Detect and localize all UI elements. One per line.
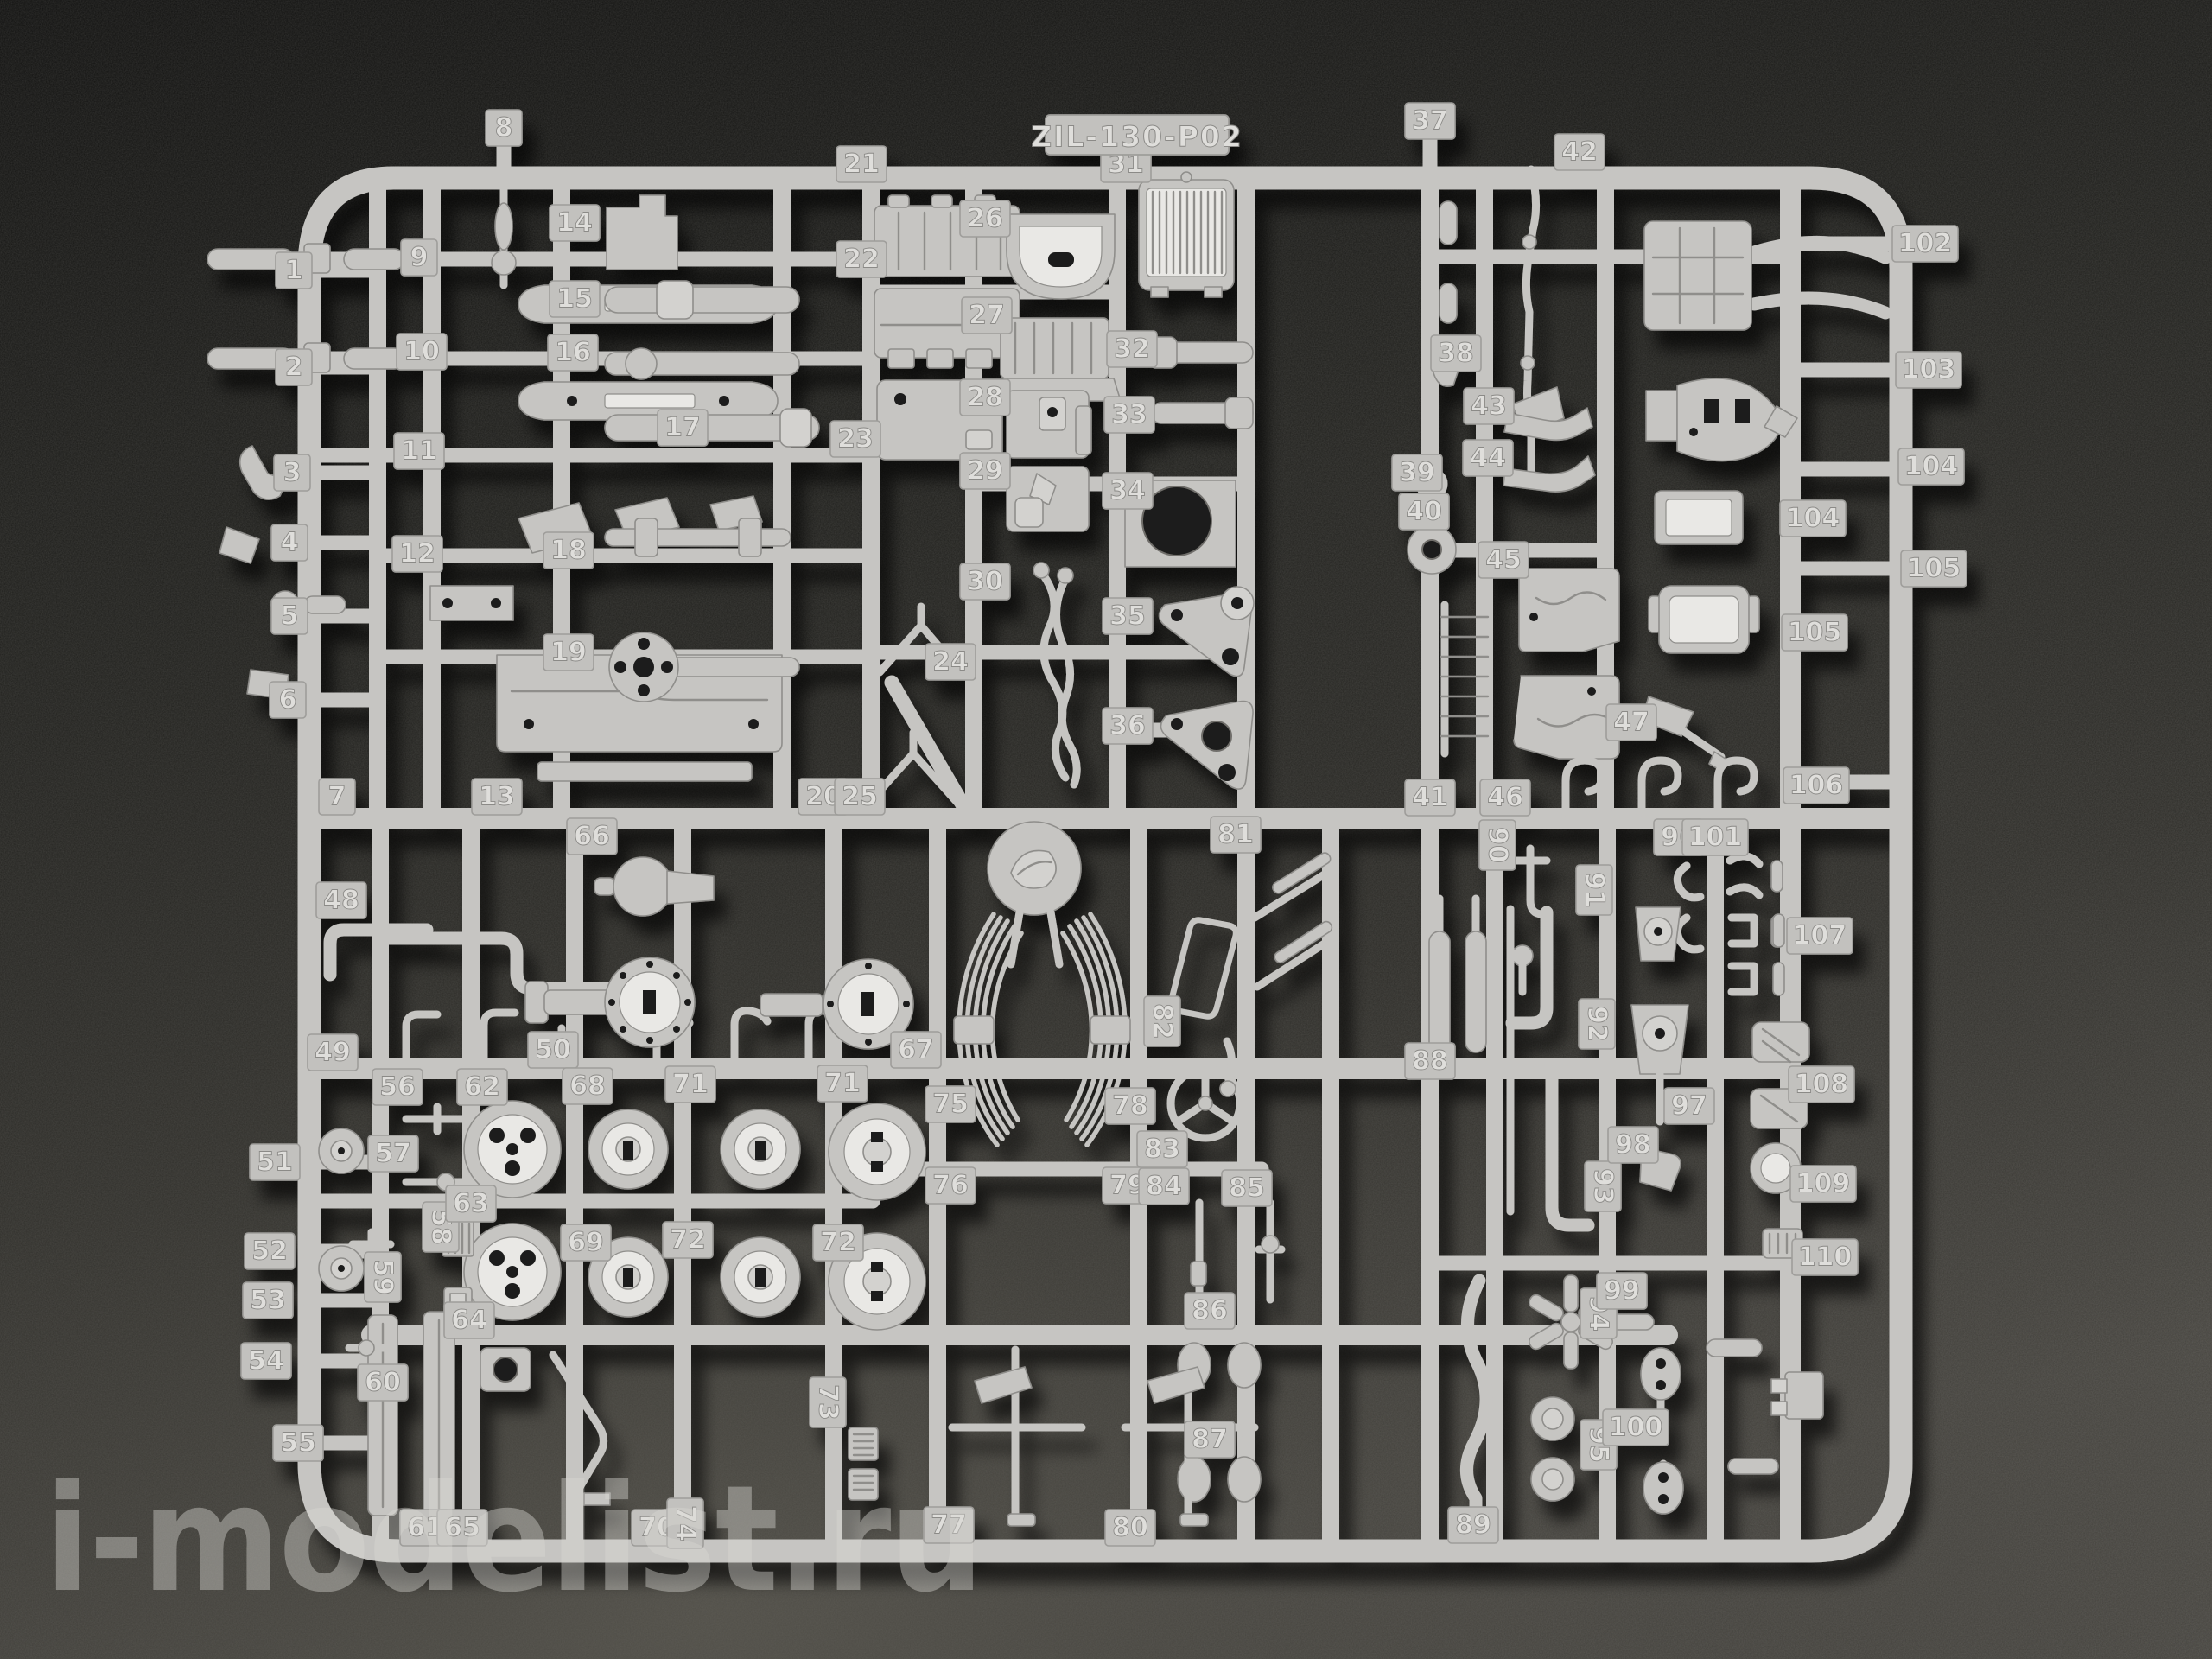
- svg-text:83: 83: [1144, 1135, 1180, 1165]
- part-tag-98: 98: [1608, 1127, 1658, 1163]
- svg-text:81: 81: [1217, 820, 1254, 850]
- part-tag-24: 24: [925, 644, 976, 680]
- svg-text:68: 68: [569, 1071, 606, 1102]
- svg-text:12: 12: [399, 539, 435, 569]
- part-tag-33: 33: [1104, 397, 1154, 433]
- svg-text:24: 24: [932, 647, 969, 677]
- svg-text:69: 69: [568, 1228, 604, 1258]
- part-tag-12: 12: [392, 536, 442, 572]
- part-tag-42: 42: [1554, 134, 1605, 170]
- svg-text:43: 43: [1471, 391, 1507, 422]
- part-cyl-33: [1151, 397, 1253, 429]
- part-tag-103: 103: [1896, 352, 1961, 388]
- part-tag-51: 51: [250, 1144, 300, 1180]
- svg-text:85: 85: [1229, 1173, 1265, 1204]
- svg-text:76: 76: [932, 1171, 969, 1201]
- part-tag-43: 43: [1464, 388, 1514, 424]
- svg-text:73: 73: [813, 1384, 843, 1421]
- part-tag-34: 34: [1103, 473, 1153, 509]
- svg-text:26: 26: [967, 204, 1003, 234]
- svg-text:37: 37: [1412, 106, 1448, 137]
- svg-text:82: 82: [1147, 1003, 1178, 1039]
- part-tag-93: 93: [1585, 1161, 1621, 1211]
- svg-text:72: 72: [820, 1228, 856, 1258]
- part-hub-mid-top: [721, 1109, 800, 1189]
- part-tag-59: 59: [365, 1252, 401, 1302]
- svg-text:93: 93: [1588, 1168, 1618, 1205]
- part-tag-75: 75: [925, 1086, 976, 1122]
- svg-text:59: 59: [368, 1259, 398, 1295]
- svg-text:28: 28: [967, 383, 1003, 413]
- part-tag-110: 110: [1792, 1239, 1858, 1275]
- svg-text:11: 11: [401, 436, 437, 467]
- part-tag-25: 25: [835, 779, 885, 815]
- part-tag-99: 99: [1597, 1273, 1647, 1309]
- svg-text:29: 29: [967, 456, 1003, 486]
- part-radiator-31: [1139, 172, 1234, 297]
- part-tag-26: 26: [960, 200, 1010, 237]
- part-tag-39: 39: [1392, 454, 1442, 491]
- svg-text:50: 50: [535, 1035, 571, 1065]
- svg-text:39: 39: [1399, 458, 1435, 488]
- svg-text:3: 3: [283, 458, 302, 488]
- part-tag-32: 32: [1107, 331, 1157, 367]
- part-tag-9: 9: [401, 239, 437, 276]
- svg-text:9: 9: [410, 243, 429, 273]
- svg-text:78: 78: [1112, 1091, 1148, 1122]
- svg-text:86: 86: [1192, 1296, 1228, 1326]
- part-tag-4: 4: [271, 524, 308, 561]
- part-tag-13: 13: [472, 779, 522, 815]
- svg-text:104: 104: [1904, 452, 1959, 482]
- part-hub-71: [829, 1103, 925, 1200]
- svg-text:89: 89: [1455, 1510, 1491, 1541]
- part-tag-37: 37: [1405, 103, 1455, 139]
- svg-text:72: 72: [670, 1225, 706, 1255]
- part-cyl-32: [1149, 337, 1253, 368]
- part-tag-105: 105: [1901, 550, 1967, 587]
- part-tag-104: 104: [1780, 500, 1846, 537]
- part-tag-10: 10: [397, 334, 447, 370]
- part-tag-16: 16: [548, 334, 598, 371]
- svg-text:32: 32: [1114, 334, 1150, 365]
- part-tag-106: 106: [1783, 767, 1849, 804]
- part-tag-76: 76: [925, 1167, 976, 1204]
- svg-text:64: 64: [451, 1306, 487, 1336]
- part-tag-66: 66: [567, 818, 617, 855]
- svg-text:42: 42: [1561, 137, 1598, 168]
- svg-text:4: 4: [281, 528, 299, 558]
- part-tag-45: 45: [1478, 542, 1529, 578]
- svg-text:103: 103: [1902, 355, 1956, 385]
- svg-text:45: 45: [1485, 545, 1522, 575]
- svg-text:106: 106: [1789, 771, 1844, 801]
- part-tag-22: 22: [836, 241, 887, 277]
- svg-text:25: 25: [842, 782, 878, 812]
- svg-text:101: 101: [1688, 823, 1743, 853]
- part-hub-mid-bottom: [721, 1237, 800, 1317]
- svg-text:44: 44: [1470, 443, 1506, 474]
- part-tag-100: 100: [1603, 1409, 1669, 1446]
- part-tag-36: 36: [1103, 708, 1153, 744]
- sprue-photo: 1234567891011121314151617181920212223242…: [0, 0, 2212, 1659]
- svg-text:92: 92: [1582, 1006, 1612, 1042]
- svg-text:6: 6: [279, 685, 297, 715]
- part-tag-19: 19: [543, 634, 594, 671]
- svg-text:108: 108: [1795, 1070, 1849, 1100]
- part-axle-15: [605, 281, 799, 319]
- svg-text:22: 22: [843, 245, 880, 275]
- part-mount-28: [1007, 391, 1091, 458]
- svg-text:14: 14: [556, 208, 593, 238]
- part-tag-30: 30: [960, 563, 1010, 600]
- svg-text:109: 109: [1796, 1169, 1851, 1199]
- part-tag-83: 83: [1137, 1131, 1187, 1167]
- svg-text:80: 80: [1112, 1513, 1148, 1543]
- part-tag-5: 5: [271, 598, 308, 634]
- svg-text:57: 57: [375, 1139, 411, 1169]
- svg-text:71: 71: [824, 1069, 861, 1099]
- svg-text:105: 105: [1788, 618, 1842, 648]
- part-mudflap-47: [1514, 676, 1619, 759]
- svg-text:75: 75: [932, 1090, 969, 1120]
- part-tag-108: 108: [1789, 1066, 1854, 1103]
- svg-text:54: 54: [248, 1346, 284, 1376]
- part-tag-107: 107: [1787, 918, 1853, 954]
- svg-text:98: 98: [1615, 1130, 1651, 1160]
- part-axle-17: [605, 409, 819, 447]
- part-tag-35: 35: [1103, 598, 1153, 634]
- part-tag-80: 80: [1105, 1510, 1155, 1546]
- part-tag-6: 6: [270, 682, 306, 718]
- svg-text:87: 87: [1192, 1425, 1228, 1455]
- svg-text:97: 97: [1671, 1091, 1707, 1122]
- part-tag-49: 49: [308, 1034, 358, 1071]
- part-tag-57: 57: [368, 1135, 418, 1172]
- svg-text:67: 67: [898, 1035, 934, 1065]
- part-tag-82: 82: [1144, 996, 1180, 1046]
- svg-text:110: 110: [1798, 1243, 1853, 1273]
- svg-text:35: 35: [1109, 601, 1146, 632]
- part-tag-87: 87: [1185, 1421, 1235, 1458]
- part-hub-68: [588, 1109, 668, 1189]
- part-tag-84: 84: [1139, 1168, 1189, 1205]
- svg-text:33: 33: [1111, 400, 1147, 430]
- kit-label: ZIL-130-P02: [1031, 120, 1243, 154]
- part-tag-97: 97: [1664, 1088, 1714, 1124]
- svg-text:38: 38: [1438, 339, 1474, 369]
- svg-text:15: 15: [556, 284, 593, 315]
- svg-text:62: 62: [464, 1072, 500, 1103]
- part-axle-16: [605, 348, 799, 379]
- part-tag-64: 64: [444, 1302, 494, 1338]
- svg-text:51: 51: [257, 1147, 293, 1178]
- photo-canvas: 1234567891011121314151617181920212223242…: [0, 0, 2212, 1659]
- svg-text:107: 107: [1793, 921, 1847, 951]
- part-tag-68: 68: [563, 1068, 613, 1104]
- svg-text:91: 91: [1580, 872, 1610, 908]
- part-tag-2: 2: [276, 349, 312, 385]
- svg-text:53: 53: [250, 1286, 286, 1316]
- part-tag-104: 104: [1898, 448, 1964, 485]
- svg-text:17: 17: [664, 413, 701, 443]
- part-tag-109: 109: [1790, 1166, 1856, 1202]
- part-tag-78: 78: [1105, 1088, 1155, 1124]
- svg-text:104: 104: [1786, 504, 1840, 534]
- svg-text:13: 13: [479, 782, 515, 812]
- part-tag-53: 53: [243, 1282, 293, 1319]
- part-tag-85: 85: [1222, 1170, 1272, 1206]
- svg-text:19: 19: [550, 638, 587, 668]
- part-tag-46: 46: [1480, 779, 1530, 816]
- svg-text:49: 49: [315, 1038, 351, 1068]
- part-tag-105: 105: [1782, 614, 1847, 651]
- svg-text:34: 34: [1109, 476, 1146, 506]
- part-bellhousing-26: [1007, 214, 1115, 299]
- svg-text:2: 2: [285, 353, 303, 383]
- part-heater-27: [1000, 318, 1121, 401]
- part-tag-1: 1: [276, 252, 312, 289]
- svg-text:105: 105: [1907, 554, 1961, 584]
- part-tag-73: 73: [810, 1377, 846, 1427]
- part-tag-40: 40: [1399, 493, 1449, 530]
- part-mudflap-46: [1519, 569, 1619, 652]
- part-tag-71: 71: [817, 1065, 868, 1102]
- part-tag-56: 56: [372, 1069, 423, 1105]
- part-tag-50: 50: [528, 1032, 578, 1068]
- part-tag-81: 81: [1211, 817, 1261, 853]
- svg-text:99: 99: [1604, 1276, 1640, 1306]
- svg-text:102: 102: [1898, 229, 1953, 259]
- part-tag-72: 72: [663, 1222, 713, 1258]
- part-ring-40: [1408, 525, 1456, 574]
- part-tag-3: 3: [274, 454, 310, 491]
- svg-text:36: 36: [1109, 711, 1146, 741]
- part-tag-15: 15: [550, 281, 600, 317]
- svg-text:63: 63: [453, 1189, 489, 1219]
- part-tag-27: 27: [962, 297, 1012, 334]
- svg-text:66: 66: [574, 822, 610, 852]
- part-tag-52: 52: [245, 1233, 295, 1269]
- part-tag-90: 90: [1479, 820, 1516, 870]
- part-tag-71: 71: [665, 1066, 715, 1103]
- part-tag-102: 102: [1892, 226, 1958, 262]
- part-tag-28: 28: [960, 379, 1010, 416]
- part-tag-72: 72: [813, 1224, 863, 1261]
- part-tag-54: 54: [241, 1343, 291, 1379]
- part-tag-11: 11: [394, 433, 444, 469]
- part-tag-86: 86: [1185, 1293, 1235, 1329]
- svg-text:47: 47: [1613, 708, 1649, 738]
- svg-text:56: 56: [379, 1072, 416, 1103]
- svg-text:84: 84: [1146, 1172, 1182, 1202]
- part-tag-89: 89: [1448, 1507, 1498, 1543]
- svg-text:7: 7: [328, 782, 346, 812]
- part-tag-63: 63: [446, 1185, 496, 1222]
- svg-text:30: 30: [967, 567, 1003, 597]
- svg-text:71: 71: [672, 1070, 709, 1100]
- svg-text:10: 10: [404, 337, 440, 367]
- svg-text:5: 5: [281, 601, 299, 632]
- part-tag-67: 67: [891, 1032, 941, 1068]
- kit-nameplate: ZIL-130-P02: [1031, 115, 1243, 155]
- svg-text:40: 40: [1406, 497, 1442, 527]
- part-tag-8: 8: [486, 110, 522, 146]
- part-headlight-64: [480, 1348, 531, 1391]
- part-tag-38: 38: [1431, 335, 1481, 372]
- svg-text:21: 21: [843, 149, 880, 180]
- part-tag-17: 17: [658, 410, 708, 446]
- part-tag-7: 7: [319, 779, 355, 815]
- svg-text:88: 88: [1412, 1046, 1448, 1077]
- part-mount-29: [1007, 467, 1089, 531]
- part-tag-41: 41: [1405, 779, 1455, 816]
- part-tag-23: 23: [830, 421, 880, 457]
- part-tag-88: 88: [1405, 1043, 1455, 1079]
- svg-text:52: 52: [251, 1236, 288, 1267]
- svg-text:100: 100: [1609, 1413, 1663, 1443]
- part-tag-92: 92: [1579, 999, 1615, 1049]
- part-tag-47: 47: [1606, 704, 1656, 741]
- svg-text:41: 41: [1412, 783, 1448, 813]
- svg-text:18: 18: [550, 536, 587, 566]
- svg-text:8: 8: [495, 113, 513, 143]
- part-drum-62: [464, 1101, 561, 1198]
- part-tag-48: 48: [316, 882, 366, 918]
- part-tag-29: 29: [960, 453, 1010, 489]
- part-tag-91: 91: [1576, 865, 1612, 915]
- svg-text:48: 48: [323, 886, 359, 916]
- svg-text:46: 46: [1487, 783, 1523, 813]
- part-box-104: [1655, 491, 1743, 544]
- svg-text:90: 90: [1483, 827, 1513, 863]
- svg-text:16: 16: [555, 338, 591, 368]
- part-tag-21: 21: [836, 146, 887, 182]
- part-tag-60: 60: [358, 1364, 408, 1401]
- part-tag-14: 14: [550, 205, 600, 241]
- part-tag-44: 44: [1463, 440, 1513, 476]
- part-tag-18: 18: [543, 532, 594, 569]
- watermark-text: i-modelist.ru: [45, 1454, 982, 1625]
- svg-text:23: 23: [837, 424, 874, 454]
- svg-text:1: 1: [285, 256, 303, 286]
- part-tag-62: 62: [457, 1069, 507, 1105]
- part-tag-101: 101: [1682, 819, 1748, 855]
- part-tank-105: [1649, 586, 1759, 653]
- svg-text:27: 27: [969, 301, 1005, 331]
- svg-text:60: 60: [365, 1368, 401, 1398]
- part-tag-69: 69: [561, 1224, 611, 1261]
